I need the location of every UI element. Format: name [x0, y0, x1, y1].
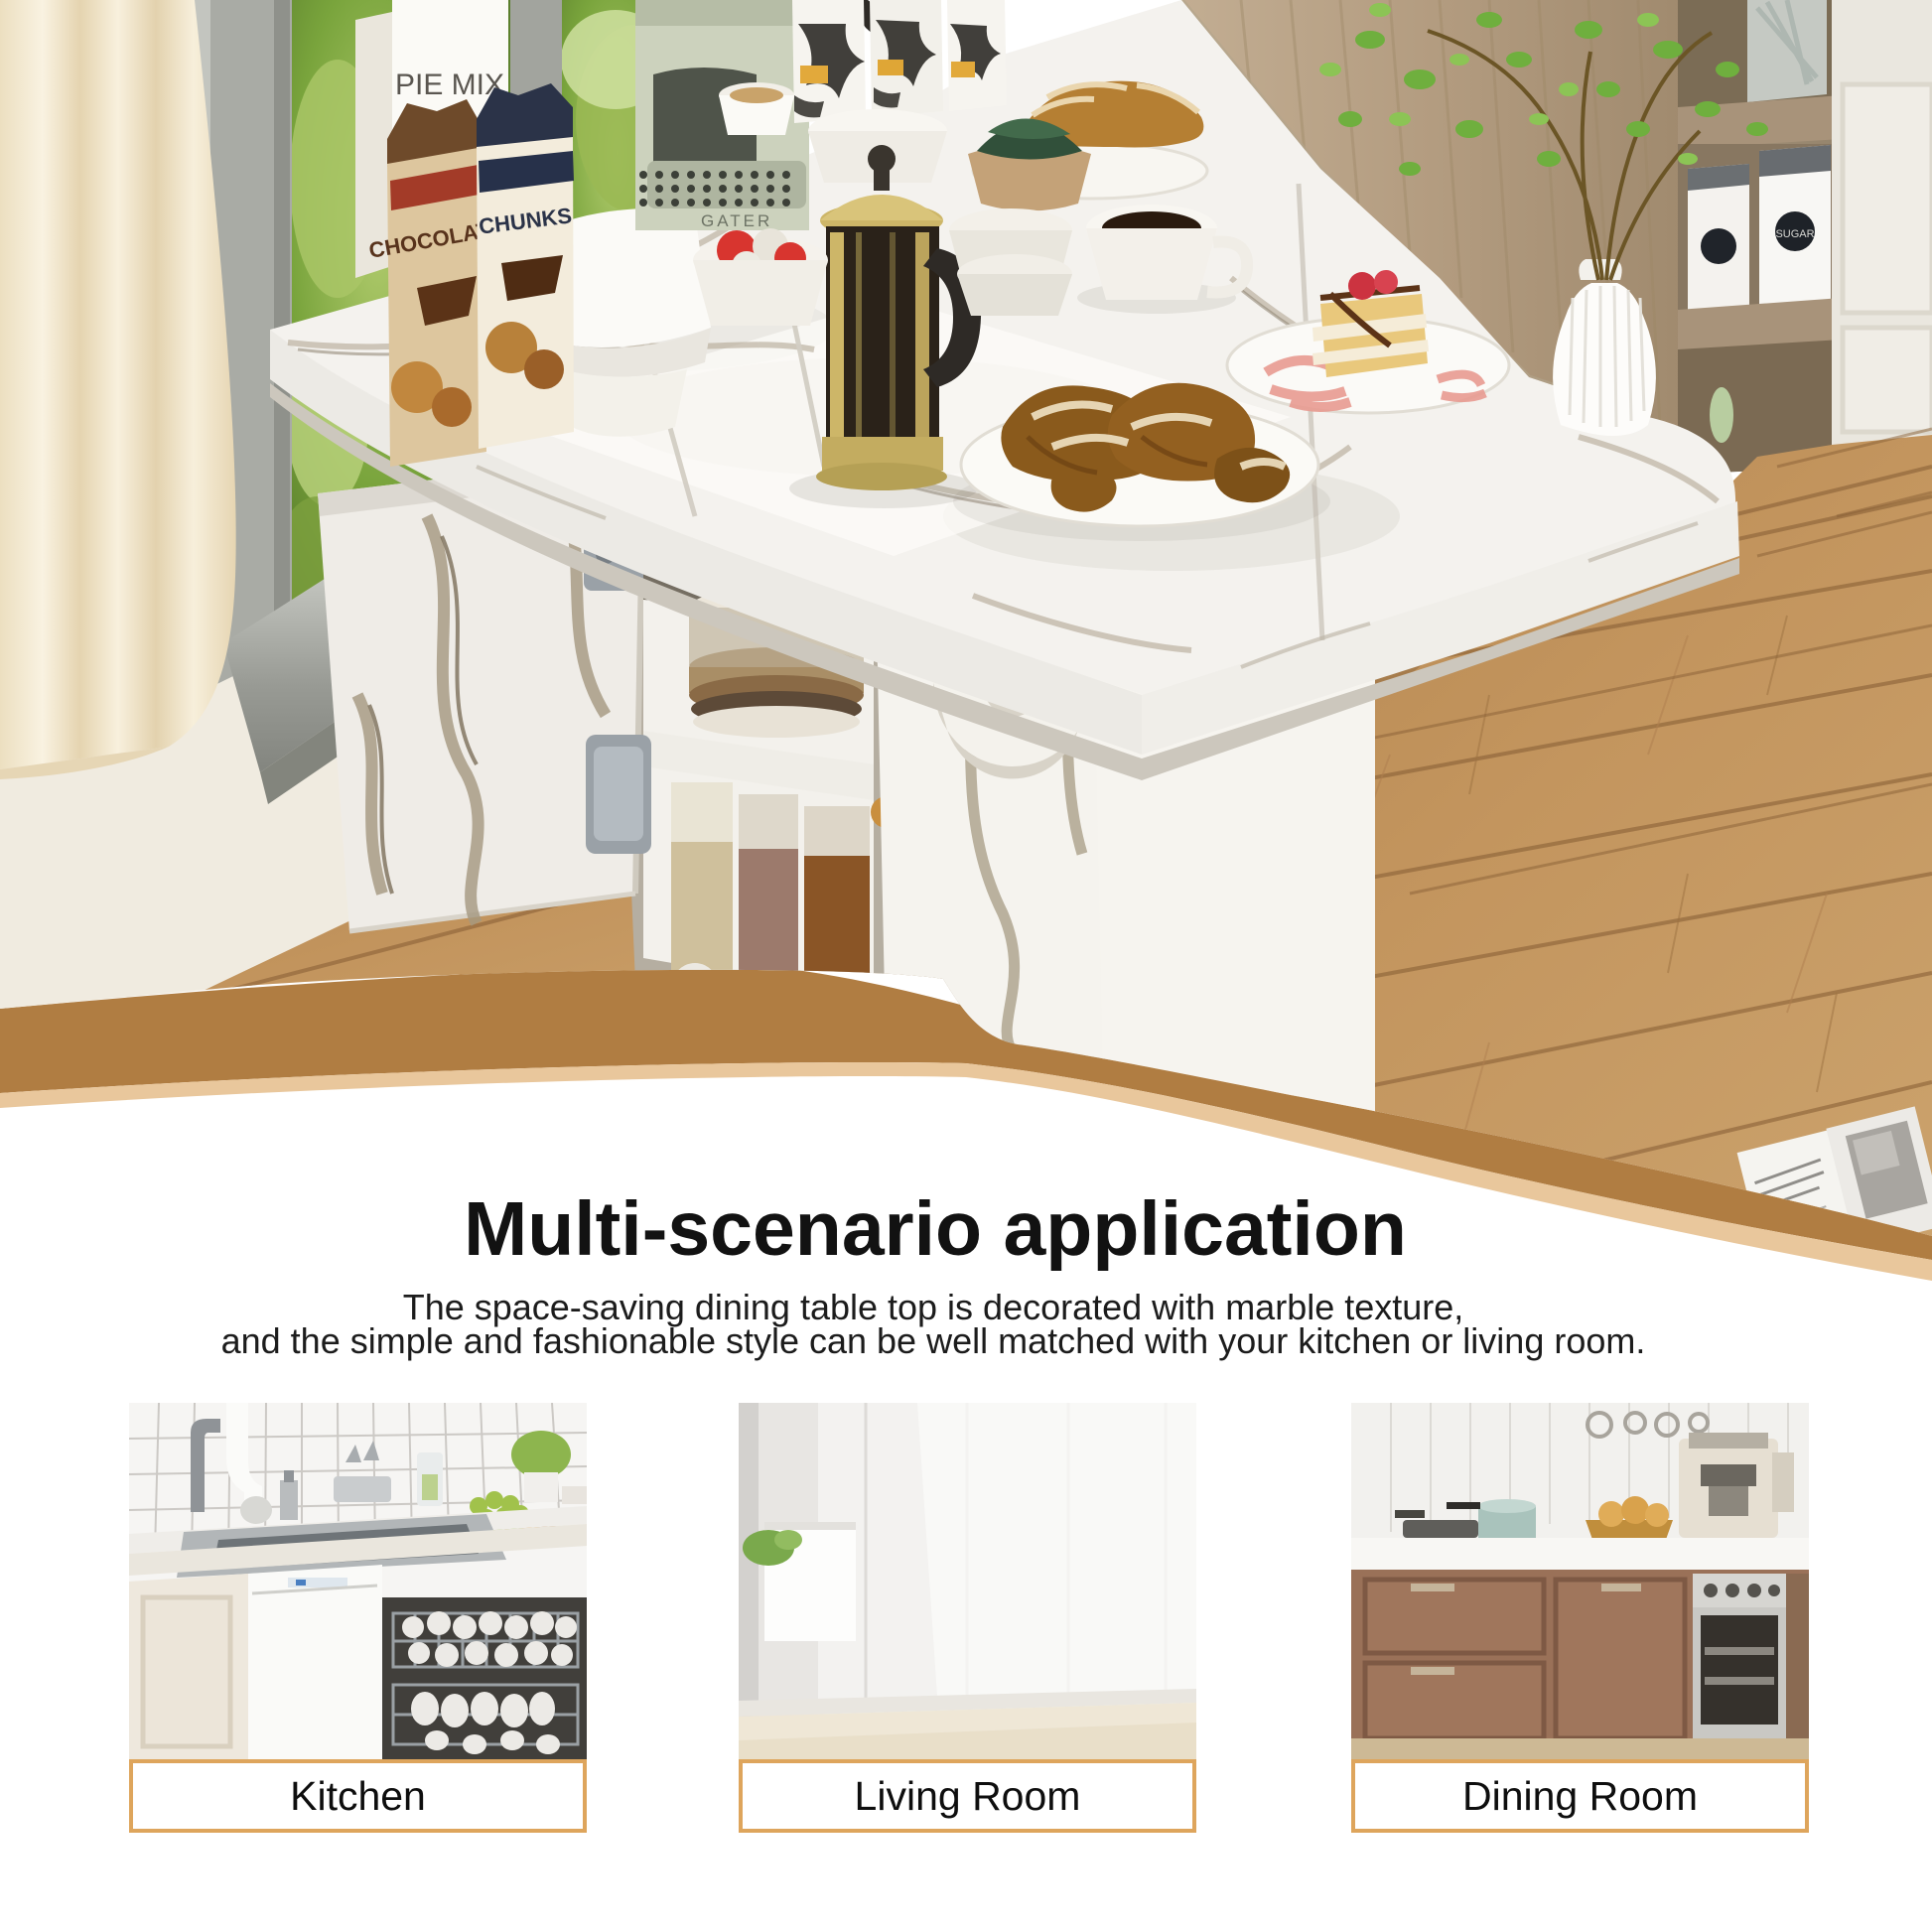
svg-text:PIE MIX: PIE MIX [395, 69, 504, 101]
svg-text:GATER: GATER [701, 211, 772, 230]
svg-text:SUGAR: SUGAR [1775, 228, 1814, 240]
